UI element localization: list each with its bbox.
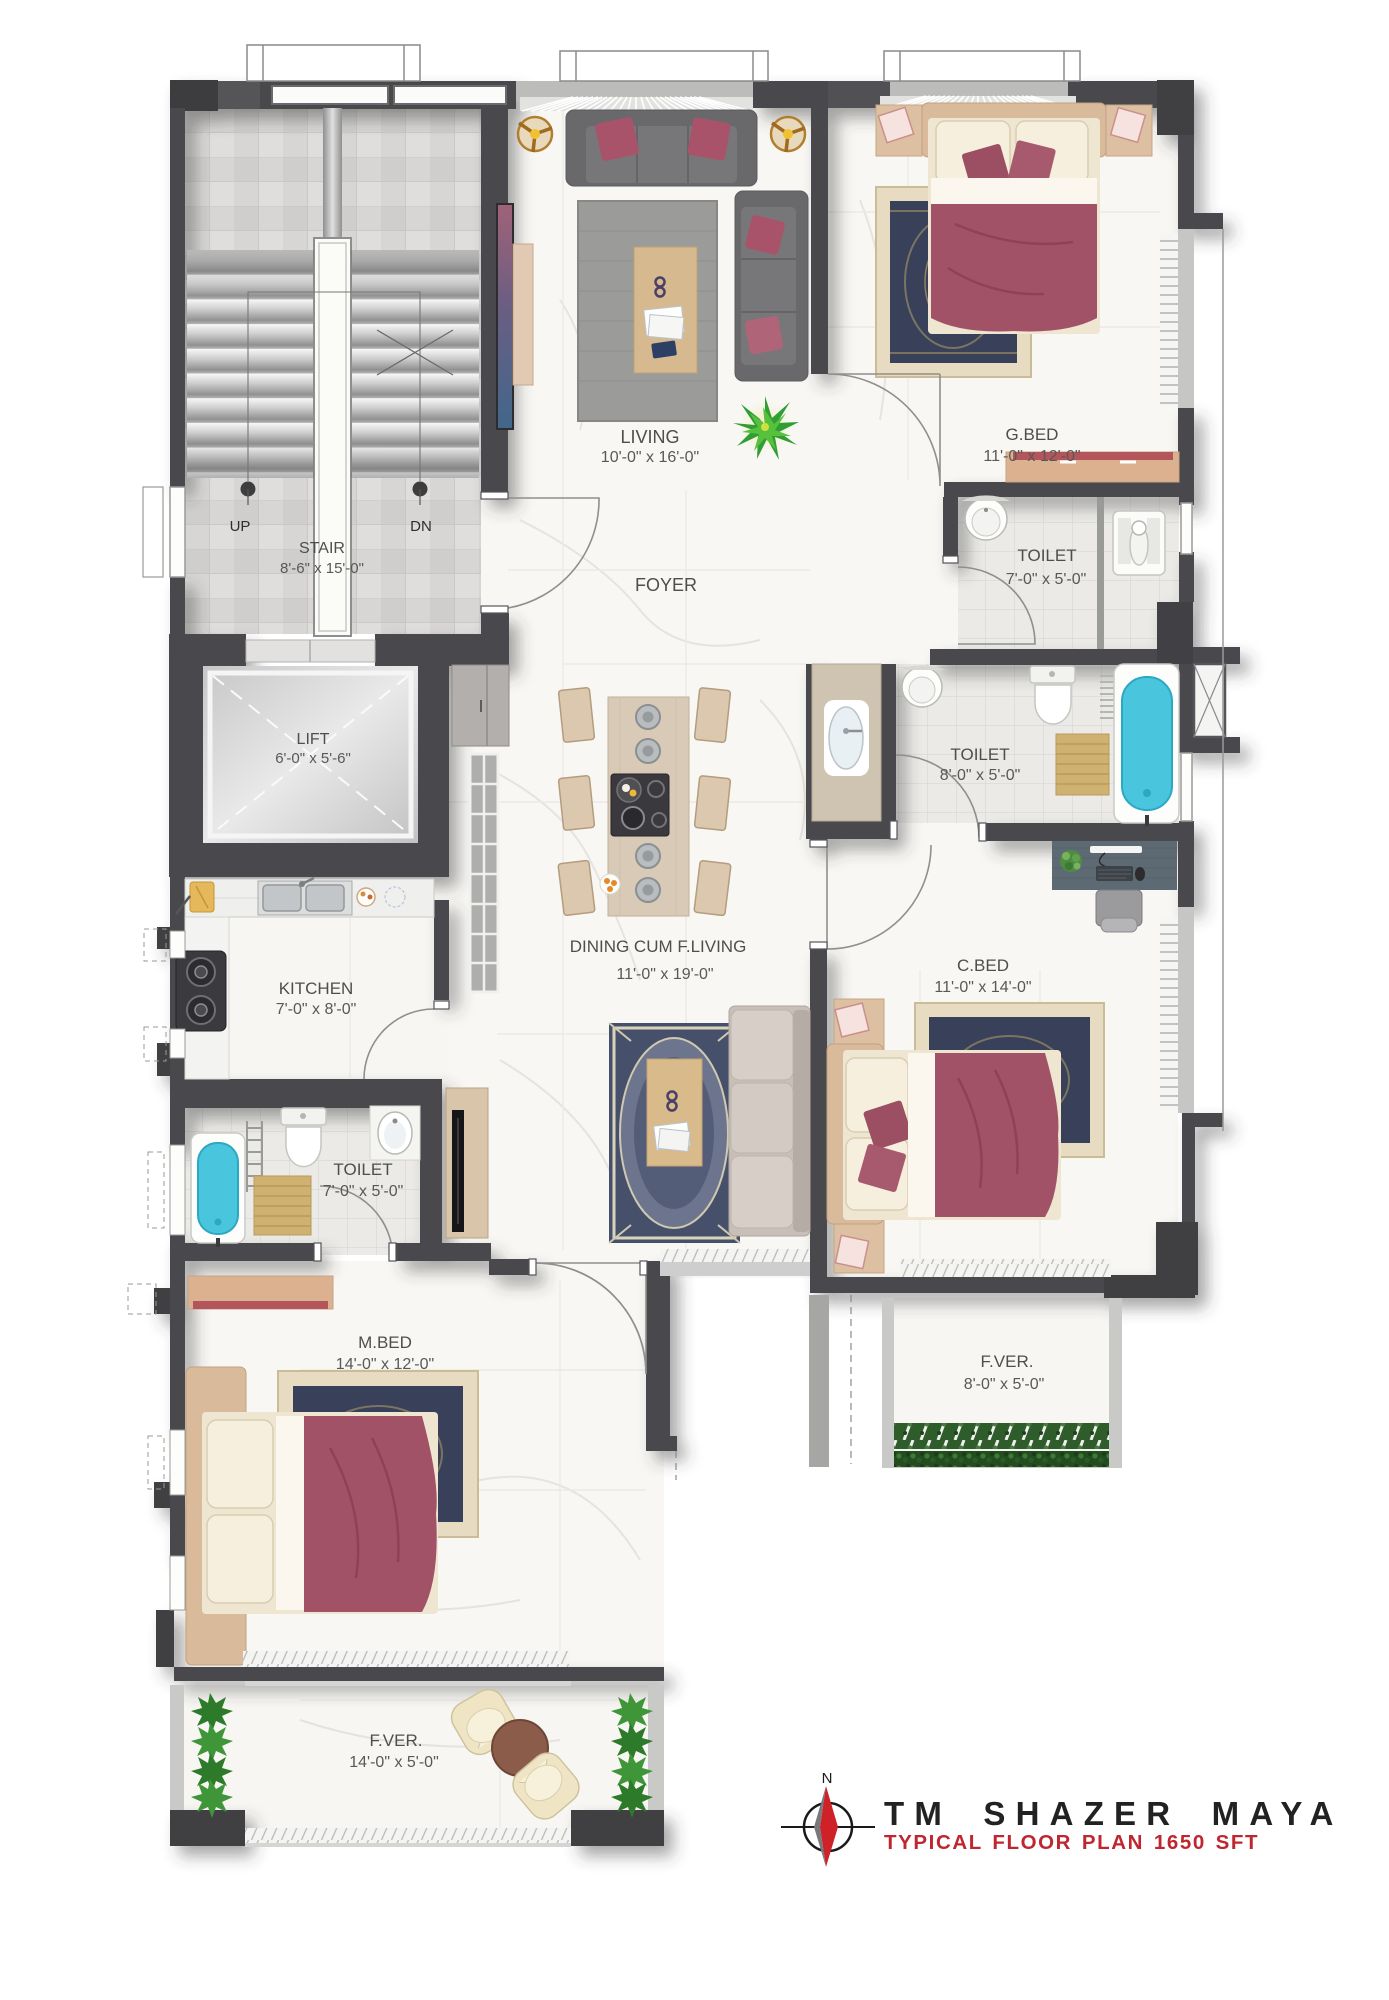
svg-text:TYPICAL FLOOR PLAN 1650 SFT: TYPICAL FLOOR PLAN 1650 SFT xyxy=(884,1831,1259,1854)
svg-text:N: N xyxy=(822,1770,833,1787)
svg-text:14'-0" x 5'-0": 14'-0" x 5'-0" xyxy=(349,1754,439,1771)
svg-text:F.VER.: F.VER. xyxy=(370,1731,423,1750)
svg-text:TOILET: TOILET xyxy=(333,1160,392,1179)
svg-text:DN: DN xyxy=(410,518,432,535)
svg-text:11'-0" x 14'-0": 11'-0" x 14'-0" xyxy=(934,979,1031,996)
svg-text:11'-0" x 19'-0": 11'-0" x 19'-0" xyxy=(616,966,713,983)
svg-text:TOILET: TOILET xyxy=(1017,546,1076,565)
svg-text:8'-0" x 5'-0": 8'-0" x 5'-0" xyxy=(964,1376,1045,1393)
svg-text:7'-0" x 5'-0": 7'-0" x 5'-0" xyxy=(1006,571,1087,588)
svg-text:KITCHEN: KITCHEN xyxy=(279,979,354,998)
svg-text:8'-6" x 15'-0": 8'-6" x 15'-0" xyxy=(280,560,364,577)
svg-text:TOILET: TOILET xyxy=(950,745,1009,764)
svg-text:UP: UP xyxy=(230,518,251,535)
svg-text:LIVING: LIVING xyxy=(620,427,679,447)
svg-text:G.BED: G.BED xyxy=(1006,425,1059,444)
svg-text:F.VER.: F.VER. xyxy=(981,1352,1034,1371)
svg-text:C.BED: C.BED xyxy=(957,956,1009,975)
svg-text:6'-0" x 5'-6": 6'-0" x 5'-6" xyxy=(275,750,351,767)
svg-text:7'-0" x 8'-0": 7'-0" x 8'-0" xyxy=(276,1001,357,1018)
svg-text:11'-0" x 12'-0": 11'-0" x 12'-0" xyxy=(983,448,1080,465)
svg-text:TM SHAZER MAYA: TM SHAZER MAYA xyxy=(884,1795,1344,1832)
svg-text:FOYER: FOYER xyxy=(635,575,697,595)
svg-text:M.BED: M.BED xyxy=(358,1333,412,1352)
svg-text:LIFT: LIFT xyxy=(297,731,330,748)
svg-text:7'-0" x 5'-0": 7'-0" x 5'-0" xyxy=(323,1183,404,1200)
svg-text:10'-0" x 16'-0": 10'-0" x 16'-0" xyxy=(601,449,699,466)
svg-text:STAIR: STAIR xyxy=(299,540,345,557)
svg-text:DINING CUM F.LIVING: DINING CUM F.LIVING xyxy=(570,937,747,956)
svg-text:14'-0" x 12'-0": 14'-0" x 12'-0" xyxy=(336,1356,434,1373)
svg-text:8'-0" x 5'-0": 8'-0" x 5'-0" xyxy=(940,767,1021,784)
